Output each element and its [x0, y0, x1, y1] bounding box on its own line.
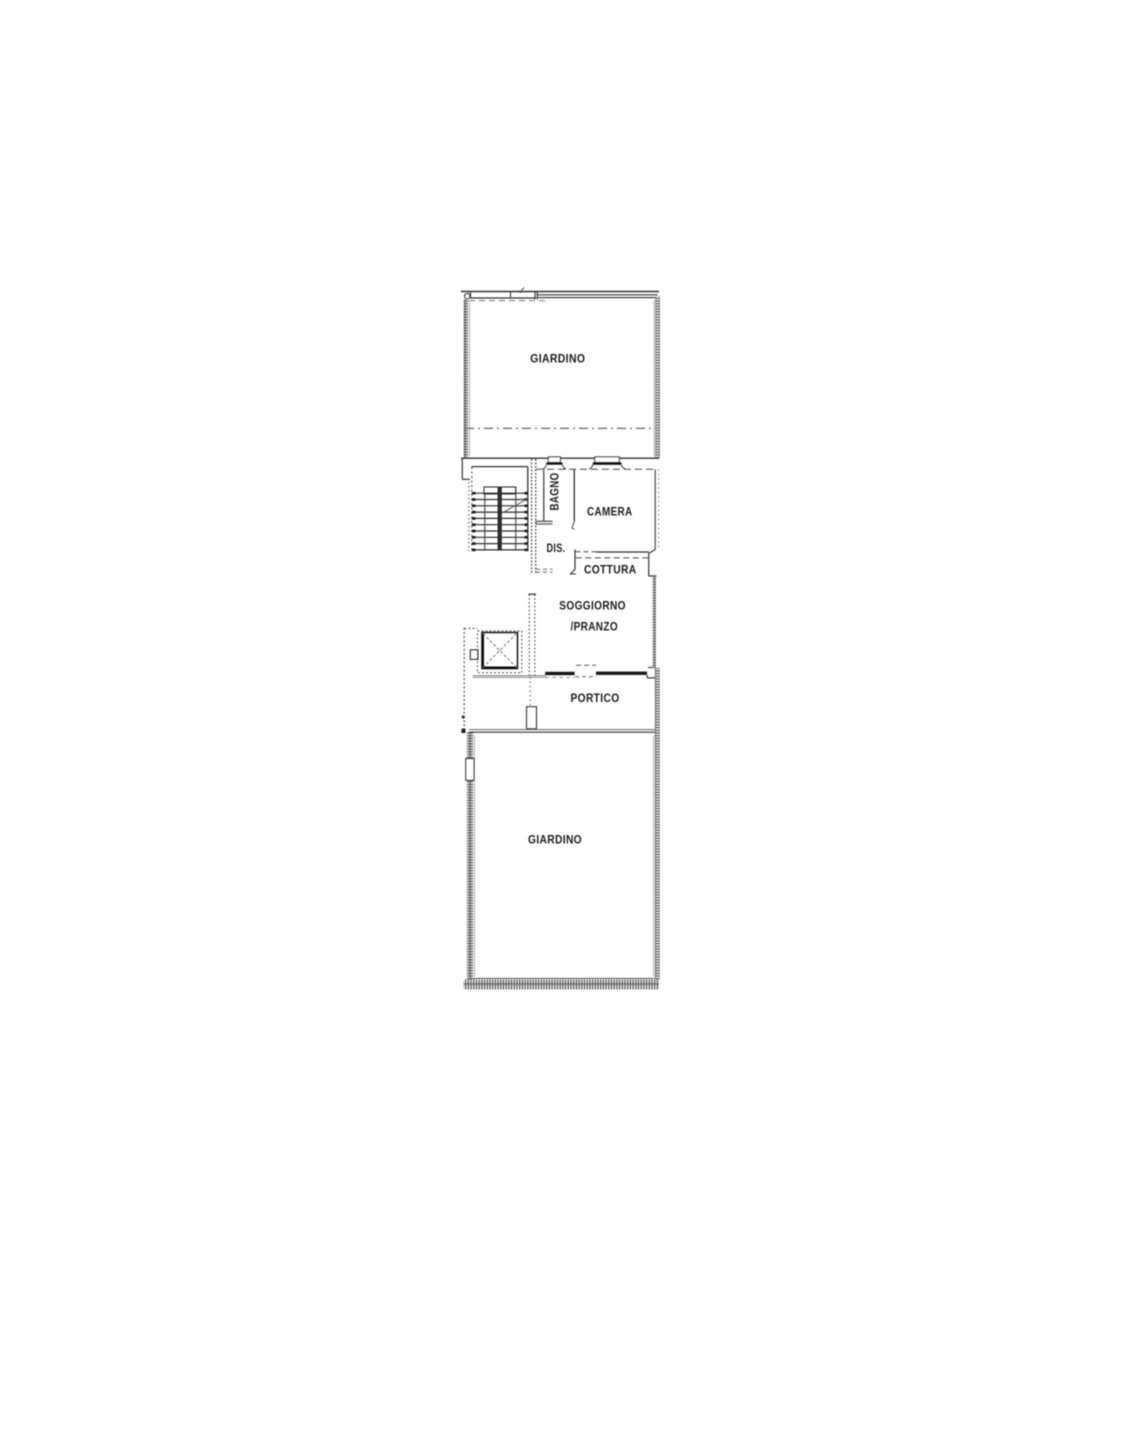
svg-text:COTTURA: COTTURA: [584, 564, 637, 576]
svg-text:PORTICO: PORTICO: [571, 693, 620, 705]
svg-text:DIS.: DIS.: [547, 543, 566, 555]
svg-text:BAGNO: BAGNO: [550, 473, 562, 511]
svg-text:GIARDINO: GIARDINO: [528, 834, 582, 846]
svg-text:SOGGIORNO: SOGGIORNO: [559, 600, 626, 612]
svg-text:CAMERA: CAMERA: [587, 507, 633, 519]
svg-text:/PRANZO: /PRANZO: [571, 622, 619, 634]
svg-text:GIARDINO: GIARDINO: [530, 353, 585, 365]
